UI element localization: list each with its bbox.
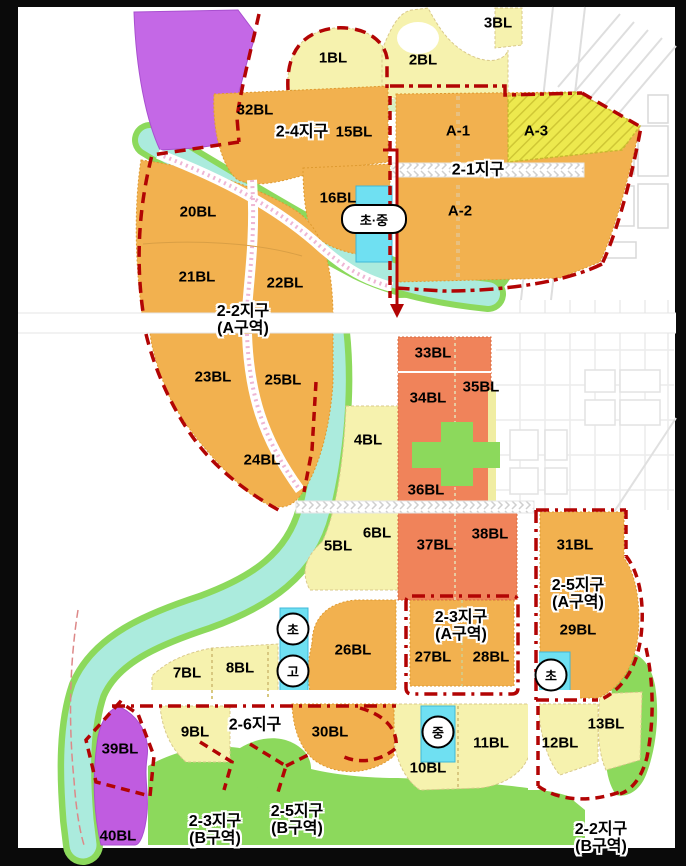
block-label-20bl: 20BL bbox=[180, 204, 217, 221]
district-label-2-3a: 2-3지구 (A구역) bbox=[435, 609, 488, 643]
block-label-4bl: 4BL bbox=[354, 432, 382, 449]
block-label-33bl: 33BL bbox=[415, 345, 452, 362]
school-badge-elementary-2: 초 bbox=[535, 659, 568, 692]
district-label-2-3a-line1: 2-3지구 bbox=[435, 609, 488, 626]
district-label-2-1: 2-1지구 bbox=[452, 162, 505, 179]
district-plan-map: 1BL 2BL 3BL 4BL 5BL 6BL 7BL 8BL 9BL 10BL… bbox=[0, 0, 686, 866]
block-label-15bl: 15BL bbox=[336, 124, 373, 141]
district-label-2-5a-line2: (A구역) bbox=[552, 594, 604, 611]
block-label-27bl: 27BL bbox=[415, 649, 452, 666]
block-label-23bl: 23BL bbox=[195, 369, 232, 386]
block-label-31bl: 31BL bbox=[557, 537, 594, 554]
block-label-11bl: 11BL bbox=[473, 735, 509, 752]
block-label-39bl: 39BL bbox=[102, 741, 139, 758]
district-label-2-6: 2-6지구 bbox=[229, 717, 282, 734]
district-label-2-3a-line2: (A구역) bbox=[435, 626, 487, 643]
district-label-2-5b-line2: (B구역) bbox=[271, 820, 323, 837]
district-label-2-2b-line1: 2-2지구 bbox=[575, 821, 628, 838]
block-label-a3: A-3 bbox=[524, 123, 548, 140]
block-label-5bl: 5BL bbox=[324, 538, 352, 555]
school-badge-middle: 중 bbox=[422, 716, 455, 749]
block-label-7bl: 7BL bbox=[173, 665, 201, 682]
district-label-2-2a: 2-2지구 (A구역) bbox=[217, 303, 270, 337]
block-label-2bl: 2BL bbox=[409, 52, 437, 69]
block-label-36bl: 36BL bbox=[408, 482, 445, 499]
block-label-37bl: 37BL bbox=[417, 537, 454, 554]
district-label-2-2b: 2-2지구 (B구역) bbox=[575, 821, 628, 855]
block-label-21bl: 21BL bbox=[179, 269, 216, 286]
district-label-2-5a-line1: 2-5지구 bbox=[552, 577, 605, 594]
block-label-40bl: 40BL bbox=[100, 828, 137, 845]
block-label-3bl: 3BL bbox=[484, 15, 512, 32]
block-label-13bl: 13BL bbox=[588, 716, 625, 733]
district-label-2-5a: 2-5지구 (A구역) bbox=[552, 577, 605, 611]
block-label-8bl: 8BL bbox=[226, 660, 254, 677]
district-label-2-3b: 2-3지구 (B구역) bbox=[189, 813, 242, 847]
block-label-30bl: 30BL bbox=[312, 724, 349, 741]
school-badge-elementary-1: 초 bbox=[277, 613, 310, 646]
block-label-25bl: 25BL bbox=[265, 372, 302, 389]
district-label-2-3b-line2: (B구역) bbox=[189, 830, 241, 847]
block-label-26bl: 26BL bbox=[335, 642, 372, 659]
block-label-22bl: 22BL bbox=[267, 275, 304, 292]
block-label-32bl: 32BL bbox=[237, 102, 274, 119]
district-label-2-2a-line1: 2-2지구 bbox=[217, 303, 270, 320]
district-label-2-3b-line1: 2-3지구 bbox=[189, 813, 242, 830]
block-label-a2: A-2 bbox=[448, 203, 472, 220]
school-badge-high: 고 bbox=[277, 655, 310, 688]
block-label-38bl: 38BL bbox=[472, 526, 509, 543]
block-label-12bl: 12BL bbox=[542, 735, 579, 752]
block-label-24bl: 24BL bbox=[244, 452, 281, 469]
block-label-28bl: 28BL bbox=[473, 649, 510, 666]
district-label-2-2a-line2: (A구역) bbox=[217, 320, 269, 337]
block-label-10bl: 10BL bbox=[410, 760, 447, 777]
school-badge-elementary-middle: 초·중 bbox=[341, 204, 407, 234]
district-label-2-5b-line1: 2-5지구 bbox=[271, 803, 324, 820]
block-label-34bl: 34BL bbox=[410, 390, 447, 407]
block-label-6bl: 6BL bbox=[363, 525, 391, 542]
white-notch bbox=[397, 22, 439, 54]
block-label-29bl: 29BL bbox=[560, 622, 597, 639]
district-label-2-4: 2-4지구 bbox=[276, 124, 329, 141]
block-label-1bl: 1BL bbox=[319, 50, 347, 67]
district-label-2-2b-line2: (B구역) bbox=[575, 838, 627, 855]
district-label-2-5b: 2-5지구 (B구역) bbox=[271, 803, 324, 837]
block-label-a1: A-1 bbox=[446, 123, 470, 140]
block-label-35bl: 35BL bbox=[463, 379, 500, 396]
block-label-9bl: 9BL bbox=[181, 724, 209, 741]
